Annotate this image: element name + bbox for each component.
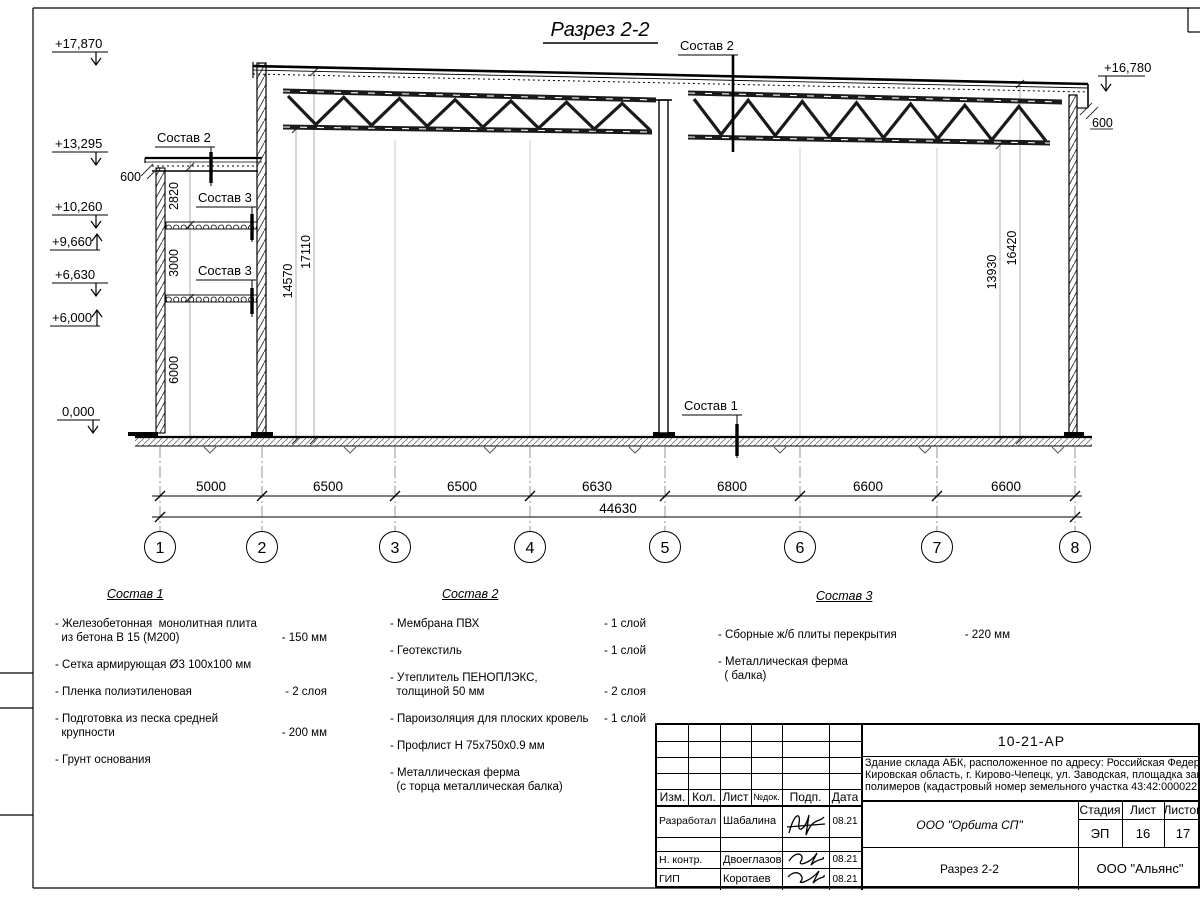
svg-text:+6,000: +6,000 xyxy=(52,310,92,325)
elevation-6000: +6,000 xyxy=(50,310,102,326)
elevation-17870: +17,870 xyxy=(52,36,108,65)
elevation-0000: 0,000 xyxy=(57,404,100,433)
tb-row-role: Разработал xyxy=(659,807,719,835)
svg-text:Состав 1: Состав 1 xyxy=(684,398,738,413)
edge-600-right: 600 xyxy=(1080,103,1113,130)
legend-item: - Геотекстиль- 1 слой xyxy=(390,644,646,658)
svg-text:3000: 3000 xyxy=(167,249,181,277)
tb-sheet-value: 16 xyxy=(1122,819,1164,847)
tb-row-name: Двоеглазов xyxy=(723,851,781,868)
column-axis8 xyxy=(1069,95,1077,433)
tb-header-izm: Изм. xyxy=(657,789,688,805)
tb-sheets-label: Листов xyxy=(1164,800,1200,819)
tb-description: Здание склада АБК, расположенное по адре… xyxy=(865,758,1200,800)
total-dim: 44630 xyxy=(599,501,637,516)
tb-header-data: Дата xyxy=(829,789,861,805)
svg-text:Состав 3: Состав 3 xyxy=(198,263,252,278)
svg-text:6600: 6600 xyxy=(991,479,1021,494)
tb-org: ООО "Орбита СП" xyxy=(861,802,1078,847)
title-block: Изм. Кол. Лист №док. Подп. Дата Разработ… xyxy=(655,723,1200,888)
tb-header-list: Лист xyxy=(720,789,751,805)
tb-header-kol: Кол. xyxy=(688,789,720,805)
elevation-10260: +10,260 xyxy=(52,199,108,228)
drawing-title: Разрез 2-2 xyxy=(543,19,658,43)
svg-text:6800: 6800 xyxy=(717,479,747,494)
axis-bubble-6: 6 xyxy=(796,540,805,557)
tb-sheets-value: 17 xyxy=(1164,819,1200,847)
elevation-marks: +17,870 +13,295 +10,260 +9,660 +6,630 +6… xyxy=(50,36,1151,433)
tb-drawing-name: Разрез 2-2 xyxy=(861,847,1078,890)
axis-bubble-7: 7 xyxy=(933,540,942,557)
legend-item: - Грунт основания xyxy=(55,753,327,767)
elevation-6630: +6,630 xyxy=(52,267,108,296)
svg-text:600: 600 xyxy=(1092,116,1113,130)
svg-text:14570: 14570 xyxy=(281,264,295,299)
legend-item: - Металлическая ферма ( балка) xyxy=(718,655,1010,683)
legend-item: - Утеплитель ПЕНОПЛЭКС, толщиной 50 мм- … xyxy=(390,671,646,699)
axis-bubble-8: 8 xyxy=(1071,540,1080,557)
svg-text:17110: 17110 xyxy=(299,235,313,269)
tb-header-podp: Подп. xyxy=(782,789,829,805)
svg-text:6500: 6500 xyxy=(313,479,343,494)
svg-text:6630: 6630 xyxy=(582,479,612,494)
callout-sostav3-upper: Состав 3 xyxy=(196,190,256,242)
axis-bubbles: 1 2 3 4 5 6 7 8 xyxy=(145,532,1091,563)
svg-text:Состав 3: Состав 3 xyxy=(198,190,252,205)
tb-row-date: 08.21 xyxy=(829,851,861,868)
svg-text:Состав 2: Состав 2 xyxy=(680,38,734,53)
callout-sostav1: Состав 1 xyxy=(682,398,742,458)
svg-text:5000: 5000 xyxy=(196,479,226,494)
axis-bubble-1: 1 xyxy=(156,540,165,557)
legend-sostav3-title: Состав 3 xyxy=(816,589,872,604)
axis-bubble-5: 5 xyxy=(661,540,670,557)
tb-stage-value: ЭП xyxy=(1078,819,1122,847)
annex-left-wall xyxy=(156,168,165,433)
legend-item: - Сборные ж/б плиты перекрытия- 220 мм xyxy=(718,628,1010,642)
ground-break-marks xyxy=(204,447,1064,453)
legend-sostav2-title: Состав 2 xyxy=(442,587,498,602)
tb-row-role: ГИП xyxy=(659,868,719,890)
svg-text:+9,660: +9,660 xyxy=(52,234,92,249)
svg-text:2820: 2820 xyxy=(167,182,181,210)
axis-bubble-3: 3 xyxy=(391,540,400,557)
legend-sostav2: Состав 2 - Мембрана ПВХ- 1 слой - Геотек… xyxy=(390,587,646,807)
legend-item: - Пароизоляция для плоских кровель- 1 сл… xyxy=(390,712,646,726)
column-axis2 xyxy=(257,63,266,433)
floor-slab xyxy=(128,432,1092,453)
legend-item: - Железобетонная монолитная плита из бет… xyxy=(55,617,327,645)
tb-sheet-label: Лист xyxy=(1122,800,1164,819)
vertical-dims: 2820 3000 6000 14570 17110 13930 16420 xyxy=(167,182,1019,384)
legend-sostav1: Состав 1 - Железобетонная монолитная пли… xyxy=(55,587,327,780)
callout-sostav3-lower: Состав 3 xyxy=(196,263,256,317)
tb-stage-label: Стадия xyxy=(1078,800,1122,819)
truss-right xyxy=(688,93,1062,143)
svg-text:0,000: 0,000 xyxy=(62,404,95,419)
svg-text:+10,260: +10,260 xyxy=(55,199,102,214)
svg-text:+6,630: +6,630 xyxy=(55,267,95,282)
svg-text:Состав 2: Состав 2 xyxy=(157,130,211,145)
svg-text:+17,870: +17,870 xyxy=(55,36,102,51)
page-title: Разрез 2-2 xyxy=(550,19,649,41)
legend-item: - Металлическая ферма (с торца металличе… xyxy=(390,766,646,794)
elevation-16780: +16,780 xyxy=(1098,60,1151,91)
annex-slab-upper xyxy=(166,222,257,229)
tb-row-name: Коротаев xyxy=(723,868,781,890)
legend-sostav3: Состав 3 - Сборные ж/б плиты перекрытия-… xyxy=(718,589,1010,696)
legend-item: - Сетка армирующая Ø3 100х100 мм xyxy=(55,658,327,672)
svg-text:6000: 6000 xyxy=(167,356,181,384)
tb-row-name: Шабалина xyxy=(723,807,781,835)
signature xyxy=(785,847,827,887)
svg-text:16420: 16420 xyxy=(1005,231,1019,266)
axis-extension-lines xyxy=(160,446,1075,531)
svg-text:6600: 6600 xyxy=(853,479,883,494)
dimension-chain: 5000 6500 6500 6630 6800 6600 6600 44630 xyxy=(152,446,1082,531)
annex-slab-lower xyxy=(166,295,257,302)
tb-doc-number: 10-21-АР xyxy=(861,725,1200,756)
legend-item: - Профлист Н 75х750х0.9 мм xyxy=(390,739,646,753)
tb-contractor: ООО "Альянс" xyxy=(1078,847,1200,890)
tb-row-role: Н. контр. xyxy=(659,851,719,868)
svg-text:6500: 6500 xyxy=(447,479,477,494)
tb-header-ndok: №док. xyxy=(751,789,782,805)
tb-row-date: 08.21 xyxy=(829,807,861,835)
elevation-9660: +9,660 xyxy=(50,234,102,250)
legend-sostav1-title: Состав 1 xyxy=(107,587,163,602)
axis-bubble-2: 2 xyxy=(258,540,267,557)
legend-item: - Мембрана ПВХ- 1 слой xyxy=(390,617,646,631)
svg-text:13930: 13930 xyxy=(985,255,999,290)
tb-row-date: 08.21 xyxy=(829,868,861,890)
svg-text:+13,295: +13,295 xyxy=(55,136,102,151)
svg-text:600: 600 xyxy=(120,170,141,184)
span-dims: 5000 6500 6500 6630 6800 6600 6600 xyxy=(196,479,1021,494)
axis-bubble-4: 4 xyxy=(526,540,535,557)
column-axis5 xyxy=(659,100,668,433)
svg-text:+16,780: +16,780 xyxy=(1104,60,1151,75)
elevation-13295: +13,295 xyxy=(52,136,108,165)
signature xyxy=(785,807,827,839)
edge-600-left: 600 xyxy=(120,164,159,184)
legend-item: - Пленка полиэтиленовая- 2 слоя xyxy=(55,685,327,699)
drawing-sheet: { "drawing": { "title": "Разрез 2-2", "e… xyxy=(0,0,1200,900)
legend-item: - Подготовка из песка средней крупности-… xyxy=(55,712,327,740)
truss-left xyxy=(283,91,656,132)
